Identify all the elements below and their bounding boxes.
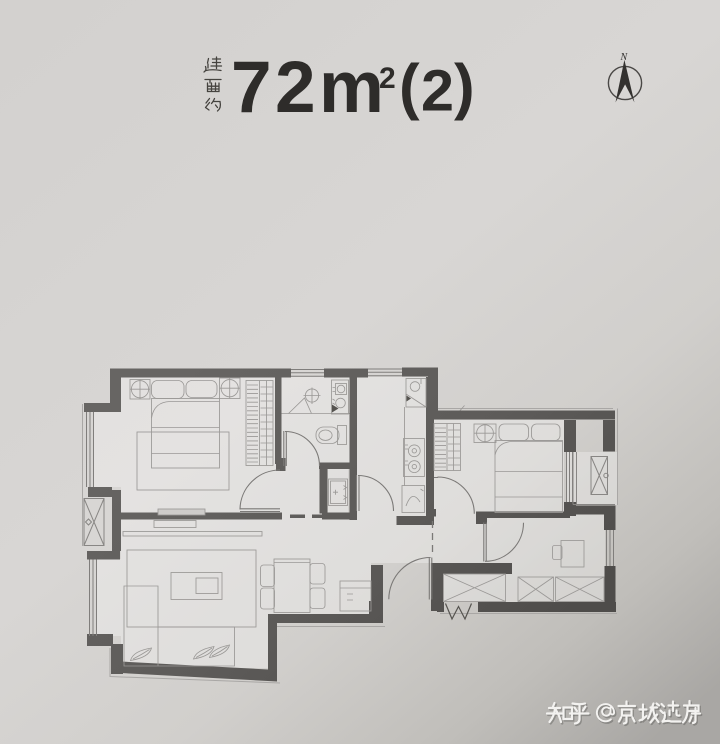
svg-text:(: (: [399, 53, 420, 122]
svg-text:72m: 72m: [231, 47, 387, 128]
svg-text:2: 2: [379, 62, 396, 95]
svg-text:2: 2: [421, 59, 454, 124]
svg-text:N: N: [620, 52, 629, 63]
svg-text:): ): [454, 53, 475, 122]
